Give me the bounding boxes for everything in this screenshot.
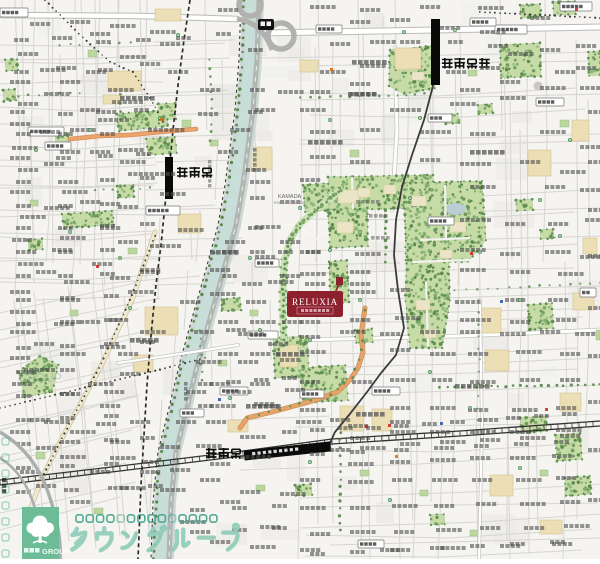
svg-text:Interior Collection: Interior Collection [274,200,307,205]
svg-text:GROUP: GROUP [42,547,70,556]
svg-text:GROUP: GROUP [18,371,62,385]
svg-text:RELUXIA: RELUXIA [292,297,338,307]
